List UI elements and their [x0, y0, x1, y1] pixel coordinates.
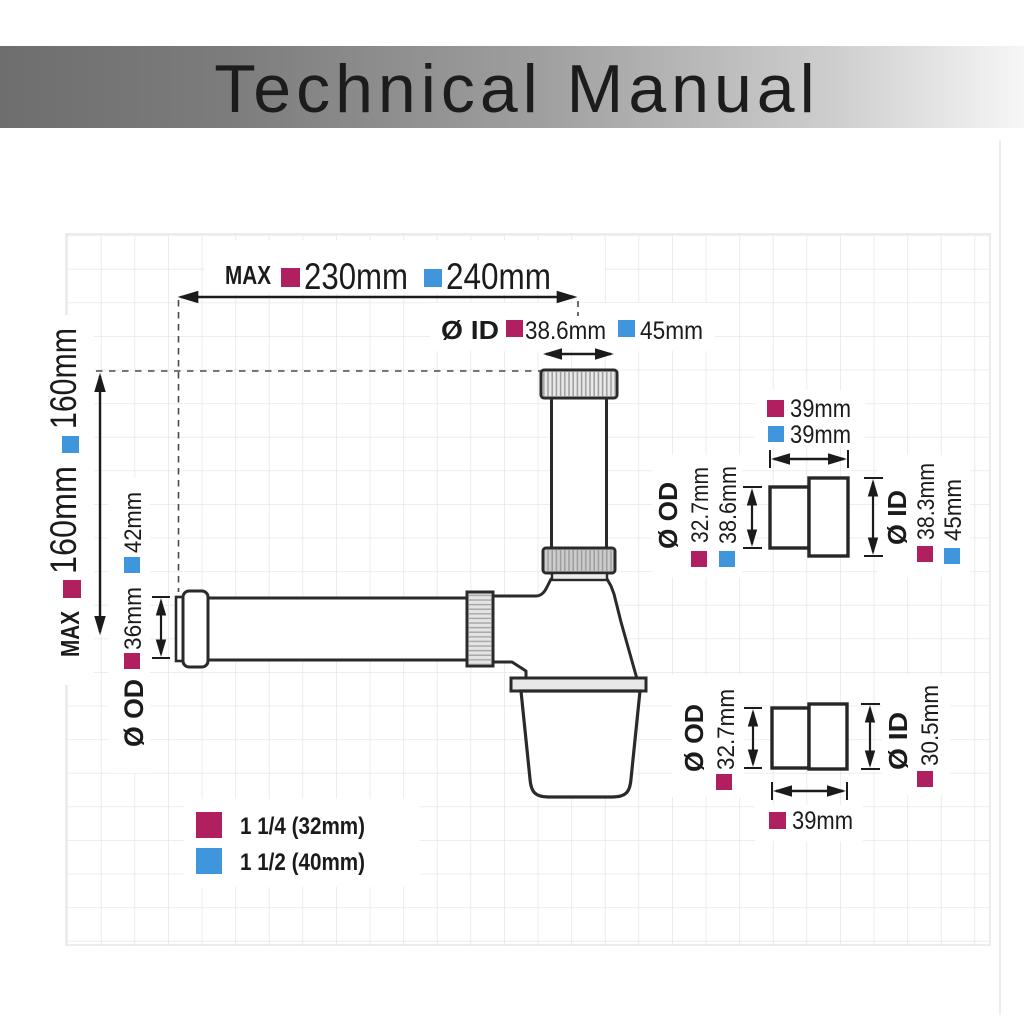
- svg-text:MAX: MAX: [55, 610, 85, 657]
- svg-text:45mm: 45mm: [640, 317, 703, 345]
- svg-text:42mm: 42mm: [120, 492, 147, 553]
- svg-text:1 1/4 (32mm): 1 1/4 (32mm): [240, 813, 365, 840]
- svg-text:39mm: 39mm: [790, 421, 851, 449]
- svg-text:Ø ID: Ø ID: [883, 712, 913, 770]
- svg-text:38.6mm: 38.6mm: [525, 317, 606, 345]
- svg-text:39mm: 39mm: [792, 807, 853, 835]
- svg-text:38.6mm: 38.6mm: [715, 466, 742, 544]
- svg-text:Ø ID: Ø ID: [882, 490, 912, 545]
- svg-text:Ø OD: Ø OD: [119, 679, 149, 747]
- svg-text:32.7mm: 32.7mm: [687, 467, 714, 543]
- svg-text:36mm: 36mm: [120, 587, 147, 650]
- svg-text:240mm: 240mm: [446, 256, 551, 297]
- svg-text:230mm: 230mm: [304, 256, 408, 297]
- svg-text:30.5mm: 30.5mm: [917, 685, 944, 766]
- svg-text:MAX: MAX: [225, 260, 272, 290]
- svg-text:160mm: 160mm: [43, 466, 84, 574]
- svg-text:Ø ID: Ø ID: [441, 315, 499, 345]
- svg-text:32.7mm: 32.7mm: [713, 689, 740, 770]
- svg-text:38.3mm: 38.3mm: [913, 463, 940, 540]
- svg-text:1 1/2 (40mm): 1 1/2 (40mm): [240, 849, 365, 876]
- svg-text:45mm: 45mm: [940, 479, 967, 541]
- svg-text:Ø OD: Ø OD: [679, 704, 709, 772]
- svg-text:39mm: 39mm: [790, 395, 851, 423]
- svg-text:160mm: 160mm: [43, 328, 84, 429]
- svg-text:Ø OD: Ø OD: [653, 482, 683, 549]
